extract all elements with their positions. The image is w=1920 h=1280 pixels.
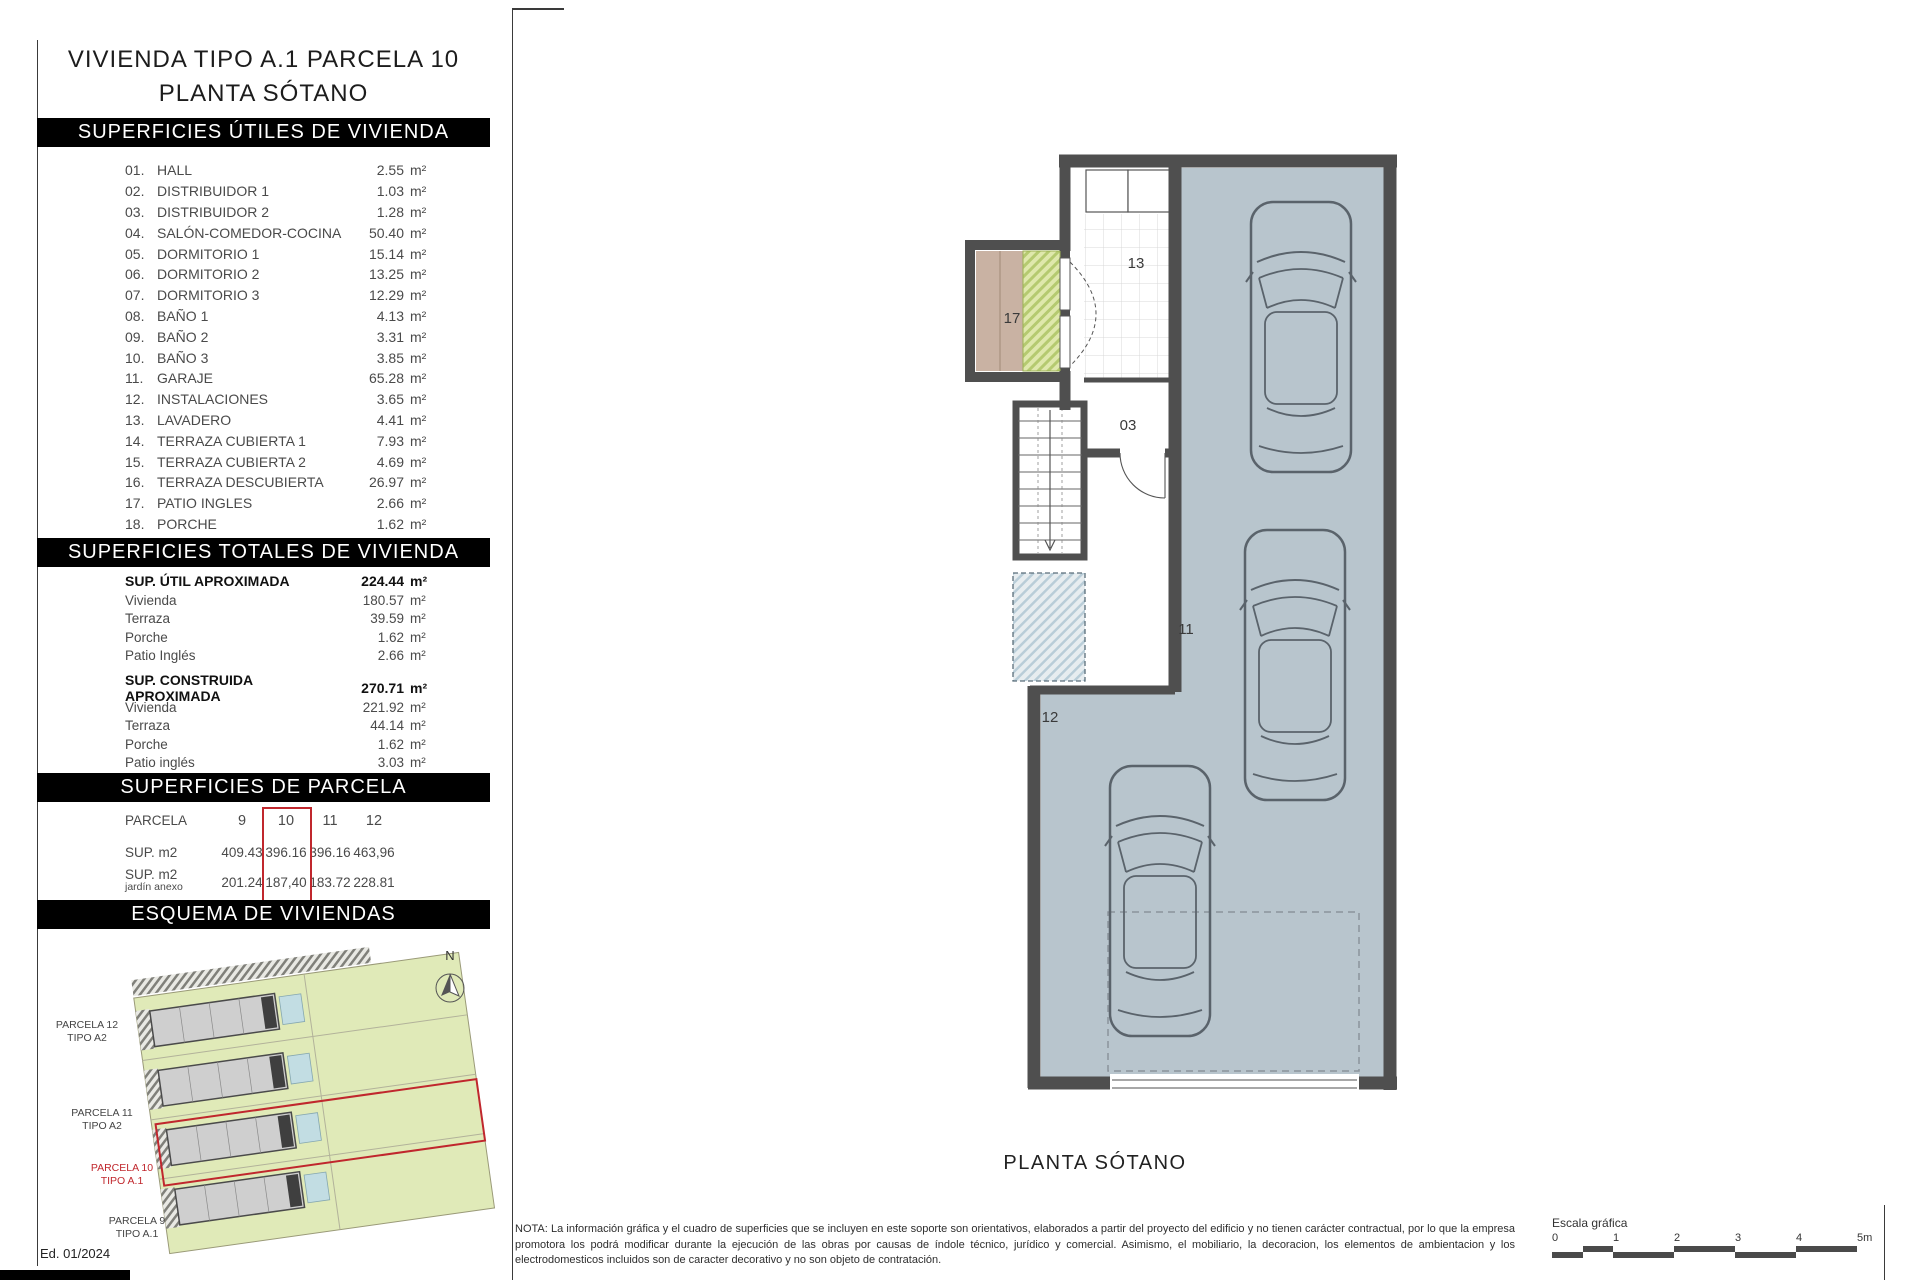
row-value: 2.55 — [352, 162, 404, 178]
row-number: 05. — [125, 246, 157, 262]
row-unit: m² — [404, 246, 440, 262]
table-row: 04. SALÓN-COMEDOR-COCINA 50.40 m² — [37, 222, 490, 243]
table-row: 05. DORMITORIO 1 15.14 m² — [37, 243, 490, 264]
row-unit: m² — [404, 287, 440, 303]
patio-door-leaf — [1060, 258, 1070, 310]
table-row: Porche 1.62 m² — [37, 735, 490, 754]
graphic-scale-bar — [1552, 1246, 1858, 1259]
row-value: 3.85 — [352, 350, 404, 366]
site-plan-rotated-group — [131, 935, 494, 1254]
graphic-scale: Escala gráfica 012345m — [1552, 1216, 1872, 1259]
plan-sheet: VIVIENDA TIPO A.1 PARCELA 10 PLANTA SÓTA… — [0, 0, 1920, 1280]
table-row: 11. GARAJE 65.28 m² — [37, 368, 490, 389]
row-unit: m² — [404, 593, 440, 608]
row-unit: m² — [404, 630, 440, 645]
stairs — [1016, 404, 1084, 557]
table-row: 16. TERRAZA DESCUBIERTA 26.97 m² — [37, 472, 490, 493]
row-number: 12. — [125, 391, 157, 407]
section-header-superficies-utiles: SUPERFICIES ÚTILES DE VIVIENDA — [37, 118, 490, 147]
row-label: DISTRIBUIDOR 1 — [157, 183, 352, 199]
table-row: Terraza 44.14 m² — [37, 717, 490, 736]
row-value: 1.62 — [352, 516, 404, 532]
parcela-id: 12 — [352, 813, 396, 829]
row-value: 13.25 — [352, 266, 404, 282]
row-value: 50.40 — [352, 225, 404, 241]
totals-group-header: SUP. CONSTRUIDA APROXIMADA 270.71 m² — [37, 677, 490, 698]
row-number: 17. — [125, 495, 157, 511]
row-label: TERRAZA DESCUBIERTA — [157, 474, 352, 490]
parcela-id: 11 — [308, 813, 352, 829]
jardin-label-line1: SUP. m2 — [125, 867, 177, 882]
table-row: 18. PORCHE 1.62 m² — [37, 514, 490, 535]
row-unit: m² — [404, 162, 440, 178]
totals-group-header: SUP. ÚTIL APROXIMADA 224.44 m² — [37, 570, 490, 591]
row-label: TERRAZA CUBIERTA 1 — [157, 433, 352, 449]
superficies-utiles-table: 01. HALL 2.55 m² 02. DISTRIBUIDOR 1 1.03… — [37, 160, 490, 534]
parcela-row-label: PARCELA — [125, 813, 187, 828]
row-label: INSTALACIONES — [157, 391, 352, 407]
room-label-patio: 17 — [1004, 310, 1021, 327]
parcela-row-label: SUP. m2 — [125, 845, 177, 860]
table-row: 07. DORMITORIO 3 12.29 m² — [37, 285, 490, 306]
table-row: 13. LAVADERO 4.41 m² — [37, 410, 490, 431]
row-label: GARAJE — [157, 370, 352, 386]
section-header-superficies-parcela: SUPERFICIES DE PARCELA — [37, 773, 490, 802]
table-row: 01. HALL 2.55 m² — [37, 160, 490, 181]
site-label-tipo-10: TIPO A.1 — [101, 1175, 144, 1187]
row-number: 14. — [125, 433, 157, 449]
row-number: 07. — [125, 287, 157, 303]
totals-group-title: SUP. CONSTRUIDA APROXIMADA — [125, 672, 346, 704]
row-number: 18. — [125, 516, 157, 532]
totals-group-value: 224.44 — [346, 573, 404, 589]
row-number: 04. — [125, 225, 157, 241]
floor-plan-drawing: 17 13 03 11 12 — [960, 140, 1410, 1100]
instalaciones-room — [1013, 573, 1085, 681]
totals-group-value: 270.71 — [346, 680, 404, 696]
room-label-garaje: 11 — [1178, 621, 1194, 638]
row-unit: m² — [404, 350, 440, 366]
table-row: 14. TERRAZA CUBIERTA 1 7.93 m² — [37, 430, 490, 451]
row-unit: m² — [404, 225, 440, 241]
row-value: 26.97 — [352, 474, 404, 490]
row-label: PORCHE — [157, 516, 352, 532]
patio-door-leaf — [1060, 316, 1070, 368]
graphic-scale-label: Escala gráfica — [1552, 1216, 1872, 1230]
scale-tick: 3 — [1735, 1232, 1796, 1244]
row-label: Vivienda — [125, 593, 346, 608]
table-row: 09. BAÑO 2 3.31 m² — [37, 326, 490, 347]
row-value: 1.62 — [346, 737, 404, 752]
row-number: 13. — [125, 412, 157, 428]
parcela-id: 9 — [220, 813, 264, 829]
table-row: 17. PATIO INGLES 2.66 m² — [37, 493, 490, 514]
row-label: PATIO INGLES — [157, 495, 352, 511]
room-label-lavadero: 13 — [1128, 255, 1145, 272]
row-number: 01. — [125, 162, 157, 178]
row-value: 39.59 — [346, 611, 404, 626]
scale-tick: 5m — [1857, 1232, 1872, 1244]
row-value: 65.28 — [352, 370, 404, 386]
row-value: 1.28 — [352, 204, 404, 220]
table-row: 08. BAÑO 1 4.13 m² — [37, 306, 490, 327]
room-label-instalaciones: 12 — [1042, 709, 1059, 726]
row-number: 02. — [125, 183, 157, 199]
row-number: 10. — [125, 350, 157, 366]
site-label-tipo-11: TIPO A2 — [82, 1120, 122, 1132]
site-plan-schema: PARCELA 12 TIPO A2 PARCELA 11 TIPO A2 PA… — [50, 932, 500, 1268]
sheet-divider — [512, 10, 513, 1280]
edition-black-bar — [0, 1270, 130, 1280]
parcela-jardin: 228.81 — [352, 875, 396, 890]
sheet-title-line2: PLANTA SÓTANO — [37, 80, 490, 108]
parcela-sup: 463,96 — [352, 845, 396, 860]
row-unit: m² — [404, 474, 440, 490]
table-row: 03. DISTRIBUIDOR 2 1.28 m² — [37, 202, 490, 223]
table-row: Patio Inglés 2.66 m² — [37, 647, 490, 666]
row-label: LAVADERO — [157, 412, 352, 428]
totals-group-rows: Vivienda 221.92 m² Terraza 44.14 m² Porc… — [37, 698, 490, 772]
row-label: BAÑO 3 — [157, 350, 352, 366]
table-row: Vivienda 180.57 m² — [37, 591, 490, 610]
row-label: SALÓN-COMEDOR-COCINA — [157, 225, 352, 241]
row-value: 12.29 — [352, 287, 404, 303]
row-unit: m² — [404, 516, 440, 532]
parcela-jardin: 201.24 — [220, 875, 264, 890]
parcela-10-highlight-box — [262, 807, 312, 903]
row-value: 44.14 — [346, 718, 404, 733]
scale-tick: 4 — [1796, 1232, 1857, 1244]
section-header-superficies-totales: SUPERFICIES TOTALES DE VIVIENDA — [37, 538, 490, 567]
row-label: Terraza — [125, 611, 346, 626]
row-number: 16. — [125, 474, 157, 490]
table-row: 02. DISTRIBUIDOR 1 1.03 m² — [37, 181, 490, 202]
section-header-esquema: ESQUEMA DE VIVIENDAS — [37, 900, 490, 929]
row-value: 3.03 — [346, 755, 404, 770]
row-unit: m² — [404, 454, 440, 470]
superficies-totales-table: SUP. ÚTIL APROXIMADA 224.44 m² Vivienda … — [37, 570, 490, 772]
row-value: 7.93 — [352, 433, 404, 449]
row-value: 4.13 — [352, 308, 404, 324]
row-label: DISTRIBUIDOR 2 — [157, 204, 352, 220]
row-value: 2.66 — [352, 495, 404, 511]
row-value: 1.03 — [352, 183, 404, 199]
row-label: Patio Inglés — [125, 648, 346, 663]
table-row: 12. INSTALACIONES 3.65 m² — [37, 389, 490, 410]
table-row: 06. DORMITORIO 2 13.25 m² — [37, 264, 490, 285]
totals-group-title: SUP. ÚTIL APROXIMADA — [125, 573, 346, 589]
parcela-jardin: 183.72 — [308, 875, 352, 890]
row-value: 3.31 — [352, 329, 404, 345]
row-value: 1.62 — [346, 630, 404, 645]
garage-door — [1110, 1074, 1359, 1093]
row-unit: m² — [404, 183, 440, 199]
site-label-parcela-9: PARCELA 9 — [109, 1215, 166, 1227]
row-label: BAÑO 1 — [157, 308, 352, 324]
graphic-scale-ticks: 012345m — [1552, 1232, 1872, 1244]
site-label-parcela-12: PARCELA 12 — [56, 1019, 118, 1031]
row-unit: m² — [404, 308, 440, 324]
titleblock-border — [1884, 1205, 1885, 1280]
row-number: 06. — [125, 266, 157, 282]
row-value: 221.92 — [346, 700, 404, 715]
row-unit: m² — [404, 329, 440, 345]
row-unit: m² — [404, 611, 440, 626]
row-unit: m² — [404, 391, 440, 407]
row-unit: m² — [404, 412, 440, 428]
row-label: DORMITORIO 2 — [157, 266, 352, 282]
edition-label: Ed. 01/2024 — [40, 1246, 110, 1261]
parcela-sup: 396.16 — [308, 845, 352, 860]
site-label-tipo-9: TIPO A.1 — [116, 1228, 159, 1240]
row-value: 15.14 — [352, 246, 404, 262]
row-value: 2.66 — [346, 648, 404, 663]
top-tick-line — [512, 8, 564, 10]
row-label: DORMITORIO 1 — [157, 246, 352, 262]
table-row: Porche 1.62 m² — [37, 628, 490, 647]
jardin-label-line2: jardín anexo — [125, 881, 183, 893]
row-label: TERRAZA CUBIERTA 2 — [157, 454, 352, 470]
row-unit: m² — [404, 495, 440, 511]
table-row: 15. TERRAZA CUBIERTA 2 4.69 m² — [37, 451, 490, 472]
row-value: 3.65 — [352, 391, 404, 407]
row-number: 15. — [125, 454, 157, 470]
row-unit: m² — [404, 204, 440, 220]
svg-text:N: N — [445, 948, 454, 963]
scale-tick: 2 — [1674, 1232, 1735, 1244]
row-unit: m² — [404, 755, 440, 770]
row-unit: m² — [404, 700, 440, 715]
disclaimer-note: NOTA: La información gráfica y el cuadro… — [515, 1222, 1515, 1269]
row-unit: m² — [404, 718, 440, 733]
row-number: 11. — [125, 370, 157, 386]
room-label-distribuidor: 03 — [1120, 417, 1137, 434]
totals-group-unit: m² — [404, 680, 440, 696]
row-value: 180.57 — [346, 593, 404, 608]
row-label: Porche — [125, 737, 346, 752]
row-number: 03. — [125, 204, 157, 220]
scale-tick: 1 — [1613, 1232, 1674, 1244]
row-value: 4.69 — [352, 454, 404, 470]
sheet-title-line1: VIVIENDA TIPO A.1 PARCELA 10 — [37, 46, 490, 74]
row-label: HALL — [157, 162, 352, 178]
parcela-row-label: SUP. m2 jardín anexo — [125, 867, 183, 893]
site-label-parcela-11: PARCELA 11 — [71, 1107, 133, 1119]
row-unit: m² — [404, 648, 440, 663]
row-unit: m² — [404, 370, 440, 386]
row-label: DORMITORIO 3 — [157, 287, 352, 303]
table-row: Terraza 39.59 m² — [37, 610, 490, 629]
row-label: Porche — [125, 630, 346, 645]
table-row: Patio inglés 3.03 m² — [37, 754, 490, 773]
row-label: Vivienda — [125, 700, 346, 715]
table-row: 10. BAÑO 3 3.85 m² — [37, 347, 490, 368]
plan-caption: PLANTA SÓTANO — [935, 1152, 1255, 1175]
row-label: Terraza — [125, 718, 346, 733]
row-unit: m² — [404, 433, 440, 449]
laundry-room — [1084, 168, 1175, 380]
row-value: 4.41 — [352, 412, 404, 428]
parcela-sup: 409.43 — [220, 845, 264, 860]
row-number: 08. — [125, 308, 157, 324]
totals-group-rows: Vivienda 180.57 m² Terraza 39.59 m² Porc… — [37, 591, 490, 665]
row-label: BAÑO 2 — [157, 329, 352, 345]
scale-tick: 0 — [1552, 1232, 1613, 1244]
row-unit: m² — [404, 266, 440, 282]
totals-group-unit: m² — [404, 573, 440, 589]
table-row: Vivienda 221.92 m² — [37, 698, 490, 717]
site-label-parcela-10: PARCELA 10 — [91, 1162, 153, 1174]
site-label-tipo-12: TIPO A2 — [67, 1032, 107, 1044]
row-number: 09. — [125, 329, 157, 345]
row-label: Patio inglés — [125, 755, 346, 770]
row-unit: m² — [404, 737, 440, 752]
